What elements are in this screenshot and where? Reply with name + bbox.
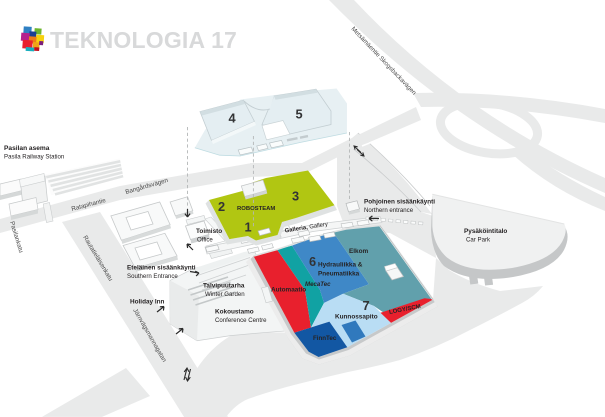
svg-text:Kokoustamo: Kokoustamo <box>215 309 254 316</box>
svg-text:Holiday Inn: Holiday Inn <box>130 299 165 306</box>
svg-text:Toimisto: Toimisto <box>196 228 222 235</box>
svg-text:Pysäköintitalo: Pysäköintitalo <box>464 228 507 235</box>
svg-text:3: 3 <box>292 189 299 204</box>
svg-text:Automaatio: Automaatio <box>271 287 306 294</box>
svg-text:2: 2 <box>218 199 225 214</box>
svg-text:Elkom: Elkom <box>349 248 368 255</box>
svg-text:Pneumatiikka: Pneumatiikka <box>318 271 360 278</box>
svg-text:5: 5 <box>296 107 303 122</box>
svg-text:Talvipuutarha: Talvipuutarha <box>203 283 245 290</box>
svg-text:Office: Office <box>197 237 213 244</box>
svg-text:MecaTec: MecaTec <box>305 281 331 288</box>
svg-text:Hydrauliikka &: Hydrauliikka & <box>318 262 363 269</box>
svg-text:4: 4 <box>229 111 237 126</box>
svg-text:Pohjoinen sisäänkäynti: Pohjoinen sisäänkäynti <box>364 199 435 206</box>
svg-text:Southern Entrance: Southern Entrance <box>127 273 178 280</box>
svg-text:Conference Centre: Conference Centre <box>215 317 267 324</box>
svg-text:Car Park: Car Park <box>466 237 491 244</box>
svg-text:Eteläinen sisäänkäynti: Eteläinen sisäänkäynti <box>127 265 196 272</box>
svg-text:1: 1 <box>245 220 252 235</box>
svg-text:Northern entrance: Northern entrance <box>364 207 414 214</box>
svg-text:FinnTec: FinnTec <box>313 335 337 342</box>
svg-text:7: 7 <box>363 298 370 313</box>
svg-text:Pasila Railway Station: Pasila Railway Station <box>4 154 64 161</box>
svg-text:Pasilan asema: Pasilan asema <box>4 145 50 152</box>
svg-text:Kunnossapito: Kunnossapito <box>335 314 378 321</box>
svg-text:Winter Garden: Winter Garden <box>205 291 245 298</box>
svg-text:TEKNOLOGIA 17: TEKNOLOGIA 17 <box>50 27 237 53</box>
svg-text:6: 6 <box>309 254 316 269</box>
svg-text:ROBOSTEAM: ROBOSTEAM <box>237 206 275 212</box>
